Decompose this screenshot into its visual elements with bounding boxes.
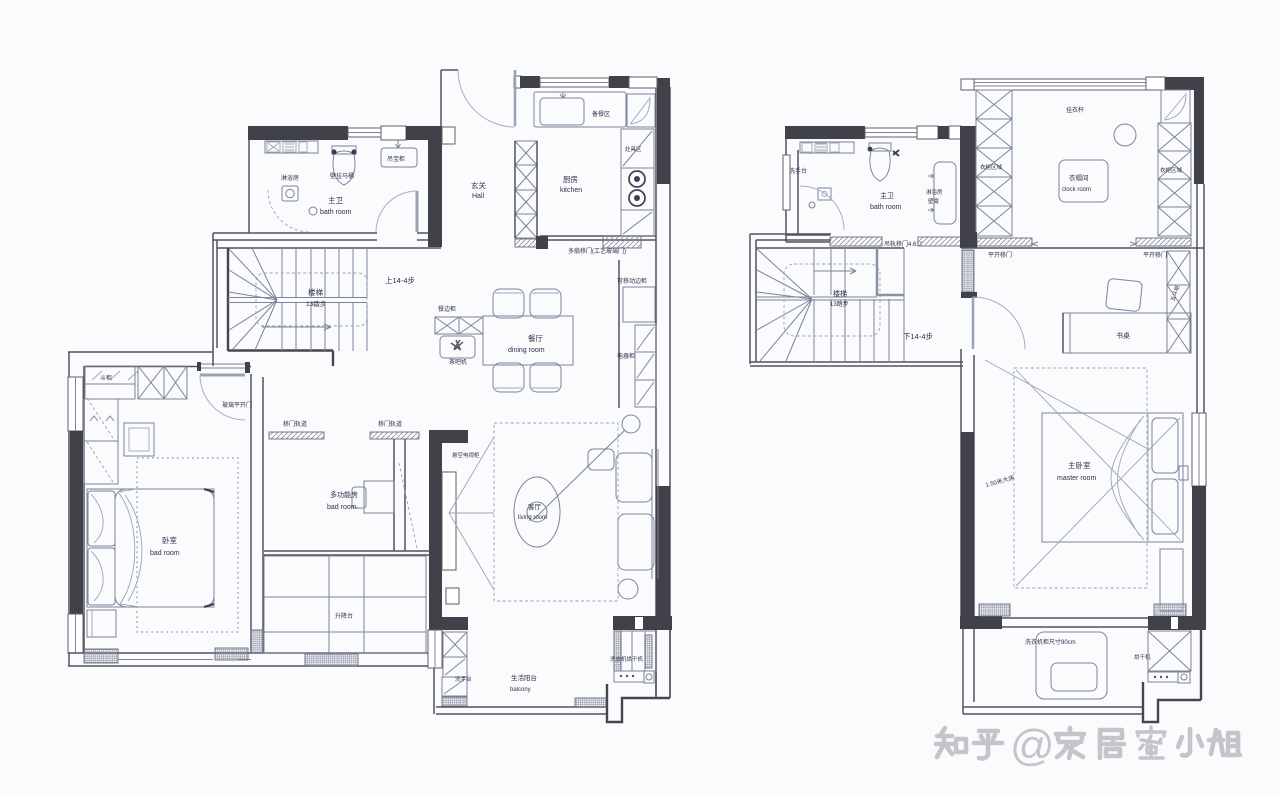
svg-text:餐边柜: 餐边柜 [438,305,456,313]
svg-text:玄关: 玄关 [471,180,486,190]
svg-text:楼梯: 楼梯 [833,289,847,298]
svg-text:Hall: Hall [472,193,485,200]
svg-text:壁龛: 壁龛 [928,197,940,205]
svg-text:衣柜区域: 衣柜区域 [1160,166,1183,174]
svg-text:平开移门: 平开移门 [988,251,1012,259]
svg-text:洗手台: 洗手台 [455,675,472,683]
svg-text:洗衣机柜尺寸90cm: 洗衣机柜尺寸90cm [1025,638,1076,646]
svg-text:洗衣机烘干机: 洗衣机烘干机 [610,655,644,663]
svg-text:主卫: 主卫 [880,191,894,200]
svg-text:13踏步: 13踏步 [306,299,327,308]
svg-text:吊轨移门4.611: 吊轨移门4.611 [884,240,923,248]
svg-text:斗柜: 斗柜 [100,374,112,382]
svg-text:玻璃平开门: 玻璃平开门 [222,401,252,409]
svg-text:clock room: clock room [1062,187,1091,193]
svg-text:衣帽间: 衣帽间 [1069,173,1089,182]
svg-text:kitchen: kitchen [560,187,582,194]
svg-text:餐厅: 餐厅 [528,334,543,343]
svg-text:多扇移门(工艺玻璃门): 多扇移门(工艺玻璃门) [568,247,626,255]
svg-text:烘干机: 烘干机 [1134,653,1151,661]
svg-text:悬空电视柜: 悬空电视柜 [452,451,480,459]
svg-text:挂衣杆: 挂衣杆 [1066,106,1084,114]
svg-text:bath room: bath room [870,204,902,211]
svg-text:主卫: 主卫 [328,195,343,205]
svg-text:主卧室: 主卧室 [1068,460,1091,470]
svg-text:电器柜: 电器柜 [617,352,635,360]
svg-text:dining room: dining room [508,347,545,354]
svg-text:厨房: 厨房 [563,174,578,184]
svg-text:壁挂马桶: 壁挂马桶 [330,172,354,180]
svg-text:生活阳台: 生活阳台 [511,673,537,682]
svg-text:移门轨道: 移门轨道 [378,420,402,428]
svg-text:平开移门: 平开移门 [1143,251,1167,259]
svg-text:书桌: 书桌 [1116,331,1130,340]
svg-text:balcony: balcony [510,687,531,693]
svg-text:灶具区: 灶具区 [625,145,642,153]
svg-text:茶吧机: 茶吧机 [449,358,467,366]
svg-text:13踏步: 13踏步 [830,300,849,308]
svg-text:淋浴房: 淋浴房 [926,188,943,196]
svg-text:living room: living room [518,515,547,521]
svg-text:master room: master room [1057,475,1096,482]
svg-text:楼梯: 楼梯 [308,287,323,297]
svg-text:客厅: 客厅 [528,502,542,511]
svg-text:卧室: 卧室 [162,535,177,545]
svg-text:bad room: bad room [150,550,180,557]
svg-text:上14-4步: 上14-4步 [385,276,416,285]
svg-text:洗手台: 洗手台 [789,167,807,175]
svg-text:移门轨道: 移门轨道 [283,420,307,428]
svg-text:下14-4步: 下14-4步 [903,332,934,341]
svg-text:衣柜区域: 衣柜区域 [980,163,1003,171]
svg-text:@: @ [1010,721,1055,770]
svg-text:可移动边柜: 可移动边柜 [617,277,647,285]
svg-text:多功能房: 多功能房 [330,490,358,499]
svg-text:吊宝柜: 吊宝柜 [387,155,405,163]
svg-text:bad room: bad room [327,504,357,511]
svg-text:升降台: 升降台 [335,612,353,620]
svg-text:bath room: bath room [320,209,352,216]
svg-text:备餐区: 备餐区 [592,110,610,118]
svg-text:淋浴房: 淋浴房 [281,174,299,182]
